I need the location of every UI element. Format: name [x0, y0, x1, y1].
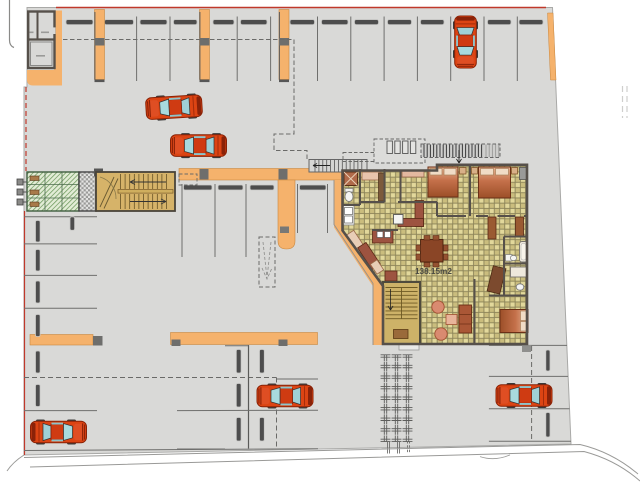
svg-text:138.15m2: 138.15m2	[415, 267, 452, 276]
